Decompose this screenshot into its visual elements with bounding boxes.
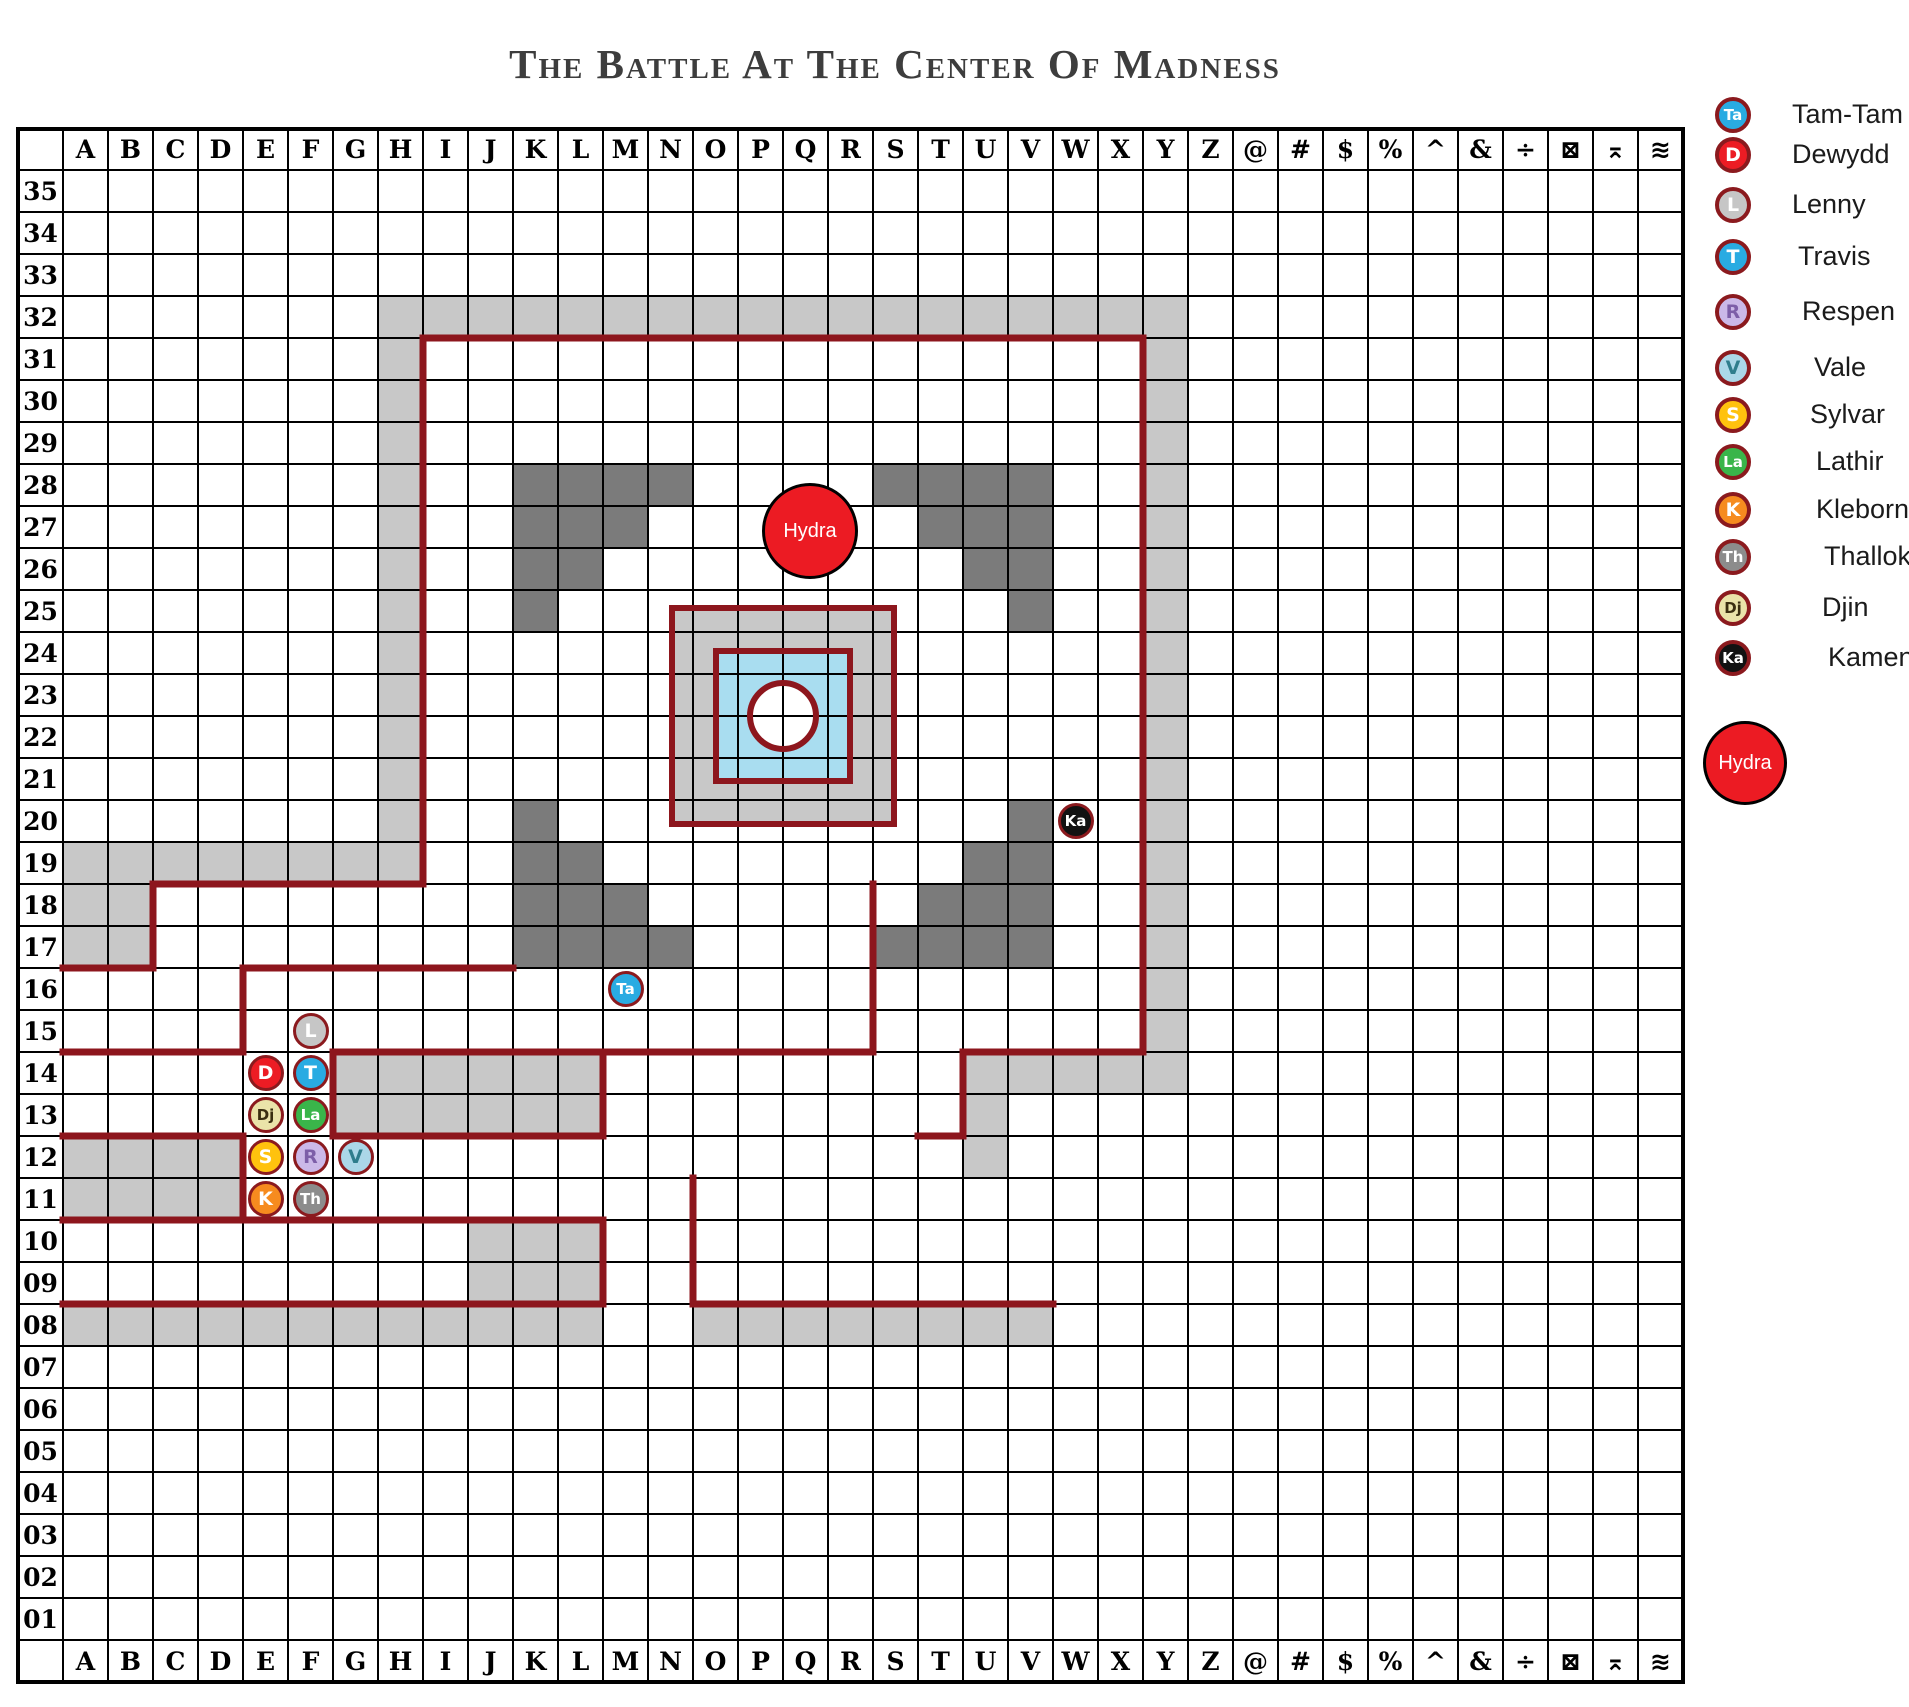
map-token-kleborn[interactable]: K <box>248 1181 284 1217</box>
legend-token-thallok: Th <box>1715 539 1751 575</box>
structure-outer-wall <box>672 608 894 824</box>
legend-token-travis: T <box>1715 239 1751 275</box>
legend-token-hydra: Hydra <box>1703 721 1787 805</box>
legend-token-sylvar: S <box>1715 397 1751 433</box>
structure-circle-wall <box>750 683 816 749</box>
legend-label-vale: Vale <box>1814 352 1866 383</box>
legend-token-tam_tam: Ta <box>1715 97 1751 133</box>
legend-label-lenny: Lenny <box>1792 189 1866 220</box>
map-token-lenny[interactable]: L <box>293 1013 329 1049</box>
legend-token-djin: Dj <box>1715 590 1751 626</box>
legend-token-lenny: L <box>1715 187 1751 223</box>
legend-label-kamen: Kamen <box>1828 642 1909 673</box>
legend-label-respen: Respen <box>1802 296 1895 327</box>
map-token-lathir[interactable]: La <box>293 1097 329 1133</box>
map-token-kamen[interactable]: Ka <box>1058 803 1094 839</box>
legend-token-kleborn: K <box>1715 492 1751 528</box>
map-token-tam_tam[interactable]: Ta <box>608 971 644 1007</box>
legend-token-respen: R <box>1715 294 1751 330</box>
map-token-hydra[interactable]: Hydra <box>762 483 858 579</box>
wall-lines <box>0 0 1909 1707</box>
map-token-travis[interactable]: T <box>293 1055 329 1091</box>
map-token-sylvar[interactable]: S <box>248 1139 284 1175</box>
map-token-dewydd[interactable]: D <box>248 1055 284 1091</box>
battle-map-screen: The Battle At The Center Of Madness AABB… <box>0 0 1909 1707</box>
legend-token-kamen: Ka <box>1715 640 1751 676</box>
map-token-djin[interactable]: Dj <box>248 1097 284 1133</box>
legend-token-lathir: La <box>1715 444 1751 480</box>
legend-label-tam_tam: Tam-Tam <box>1792 99 1903 130</box>
legend-label-sylvar: Sylvar <box>1810 399 1885 430</box>
legend-label-dewydd: Dewydd <box>1792 139 1890 170</box>
legend-token-dewydd: D <box>1715 137 1751 173</box>
legend-label-kleborn: Kleborn <box>1816 494 1909 525</box>
legend-label-travis: Travis <box>1798 241 1871 272</box>
map-token-vale[interactable]: V <box>338 1139 374 1175</box>
structure-inner-wall <box>716 651 850 781</box>
legend-label-djin: Djin <box>1822 592 1869 623</box>
map-token-respen[interactable]: R <box>293 1139 329 1175</box>
map-token-thallok[interactable]: Th <box>293 1181 329 1217</box>
legend-label-lathir: Lathir <box>1816 446 1884 477</box>
legend-token-vale: V <box>1715 350 1751 386</box>
legend-label-thallok: Thallok <box>1824 541 1909 572</box>
